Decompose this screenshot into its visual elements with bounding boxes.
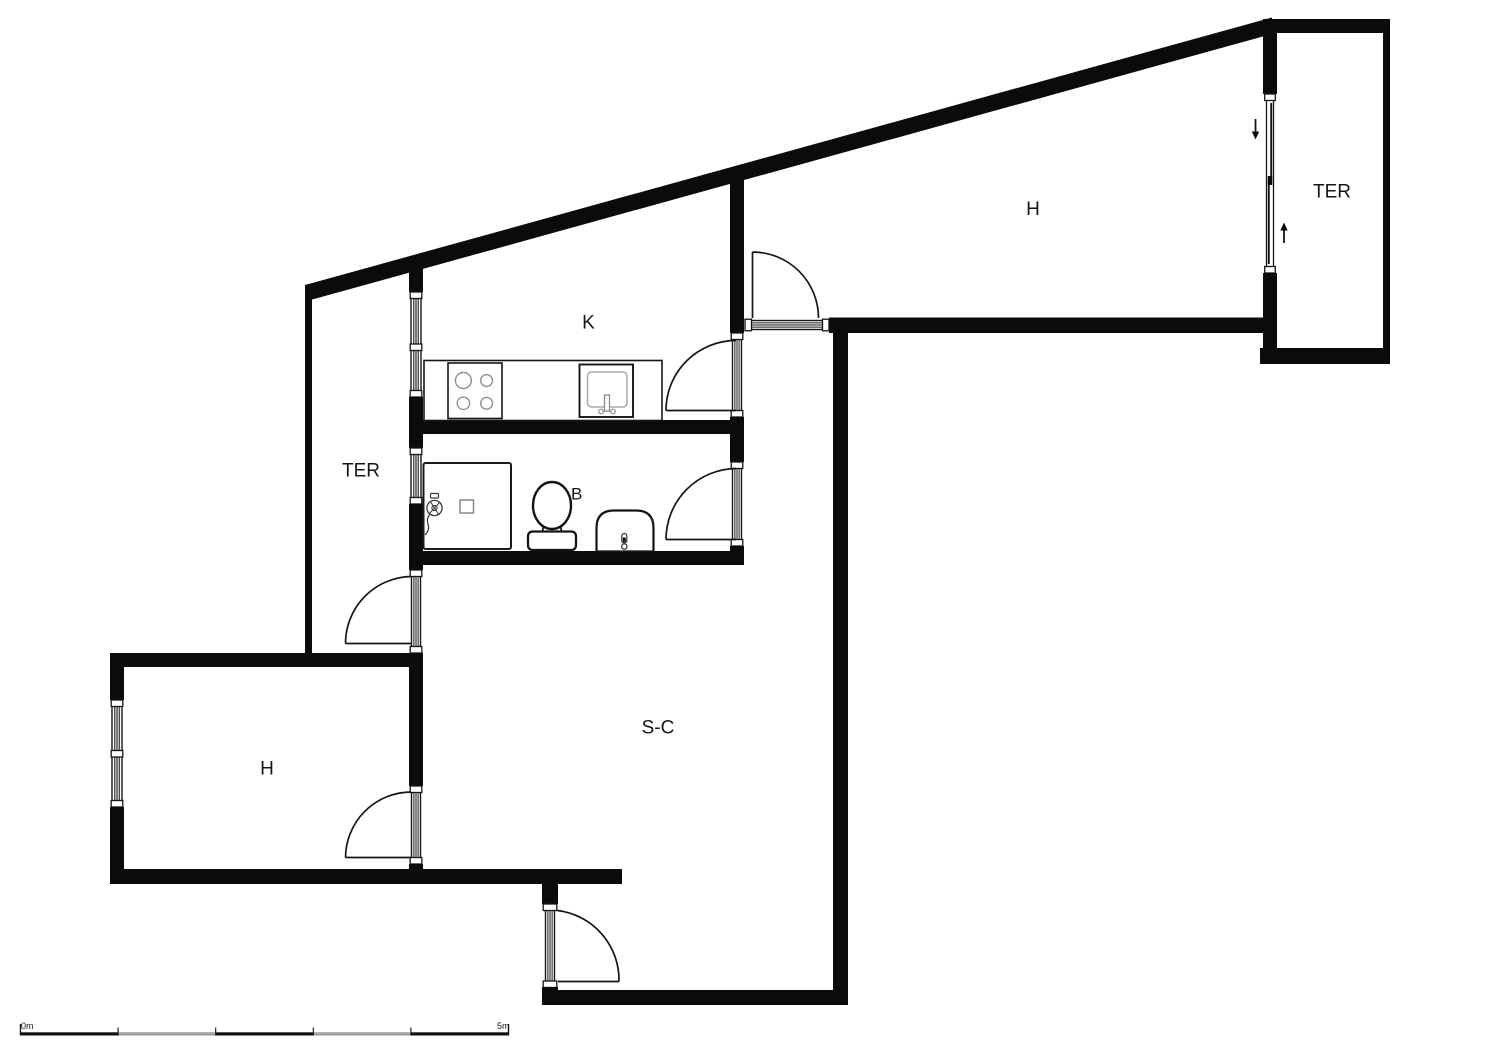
svg-text:H: H [1026, 199, 1040, 220]
svg-text:5m: 5m [497, 1021, 510, 1031]
svg-text:K: K [582, 313, 595, 334]
svg-text:S-C: S-C [642, 718, 675, 739]
svg-text:TER: TER [1313, 182, 1351, 203]
svg-text:TER: TER [342, 461, 380, 482]
svg-text:B: B [571, 485, 582, 504]
svg-text:0m: 0m [21, 1021, 34, 1031]
svg-text:H: H [260, 759, 274, 780]
